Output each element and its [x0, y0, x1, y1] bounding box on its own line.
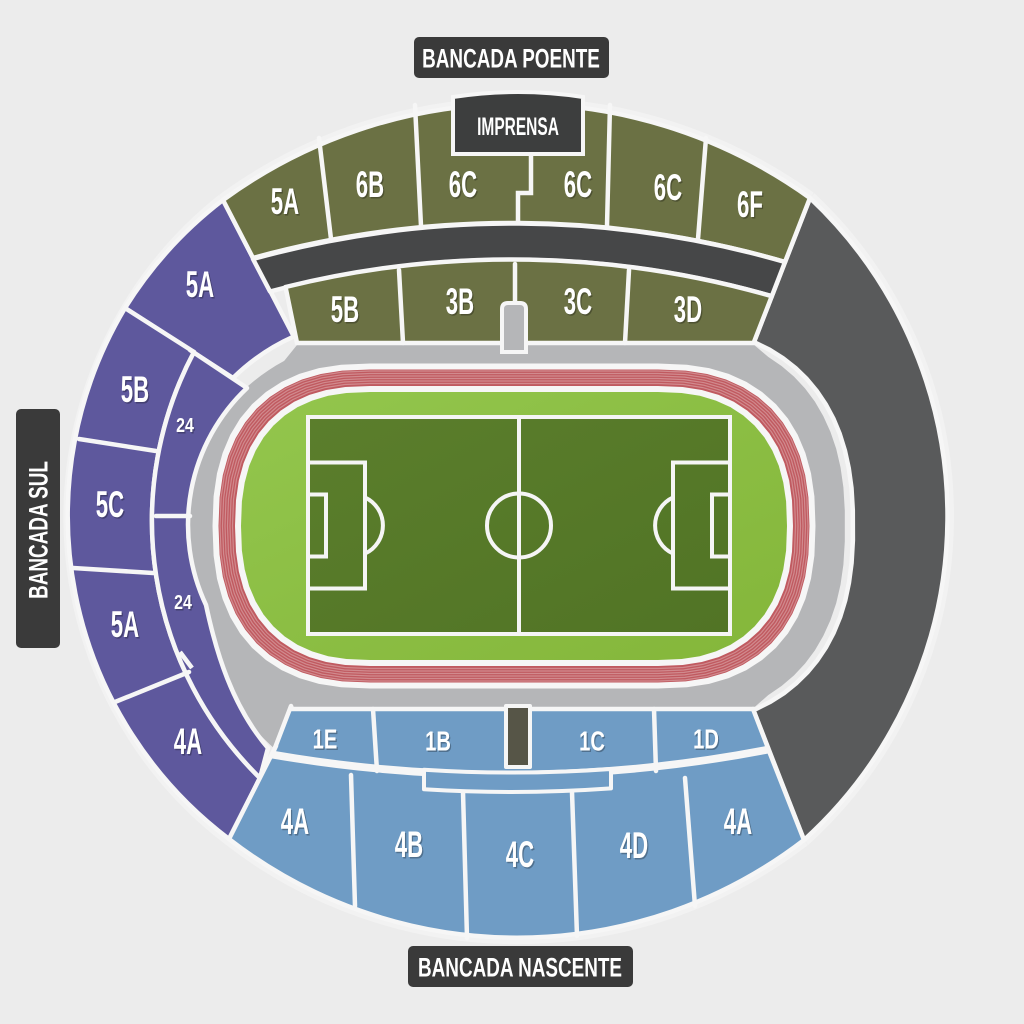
svg-text:1C: 1C [579, 727, 605, 758]
svg-text:5C: 5C [96, 484, 124, 525]
svg-text:5B: 5B [331, 289, 359, 330]
svg-text:4A: 4A [724, 801, 752, 842]
svg-text:4C: 4C [506, 834, 534, 875]
svg-text:BANCADA POENTE: BANCADA POENTE [422, 43, 600, 73]
svg-text:3C: 3C [564, 281, 592, 322]
svg-text:5B: 5B [121, 369, 149, 410]
svg-text:3D: 3D [674, 289, 702, 330]
svg-text:5A: 5A [111, 604, 139, 645]
svg-text:BANCADA SUL: BANCADA SUL [23, 461, 53, 599]
svg-text:24: 24 [176, 413, 194, 436]
svg-text:1D: 1D [693, 725, 719, 756]
svg-text:5A: 5A [271, 181, 299, 222]
svg-text:3B: 3B [446, 281, 474, 322]
svg-text:24: 24 [174, 590, 192, 613]
svg-text:6C: 6C [564, 164, 592, 205]
svg-text:BANCADA NASCENTE: BANCADA NASCENTE [418, 952, 622, 982]
svg-text:4A: 4A [174, 721, 202, 762]
svg-text:1B: 1B [425, 727, 451, 758]
svg-text:IMPRENSA: IMPRENSA [477, 113, 559, 141]
svg-text:4D: 4D [620, 825, 648, 866]
svg-text:6F: 6F [737, 184, 763, 225]
svg-text:4B: 4B [395, 824, 423, 865]
svg-text:6C: 6C [449, 164, 477, 205]
svg-text:6C: 6C [654, 167, 682, 208]
svg-text:6B: 6B [356, 164, 384, 205]
svg-text:4A: 4A [281, 801, 309, 842]
svg-text:5A: 5A [186, 264, 214, 305]
svg-text:1E: 1E [313, 725, 338, 756]
